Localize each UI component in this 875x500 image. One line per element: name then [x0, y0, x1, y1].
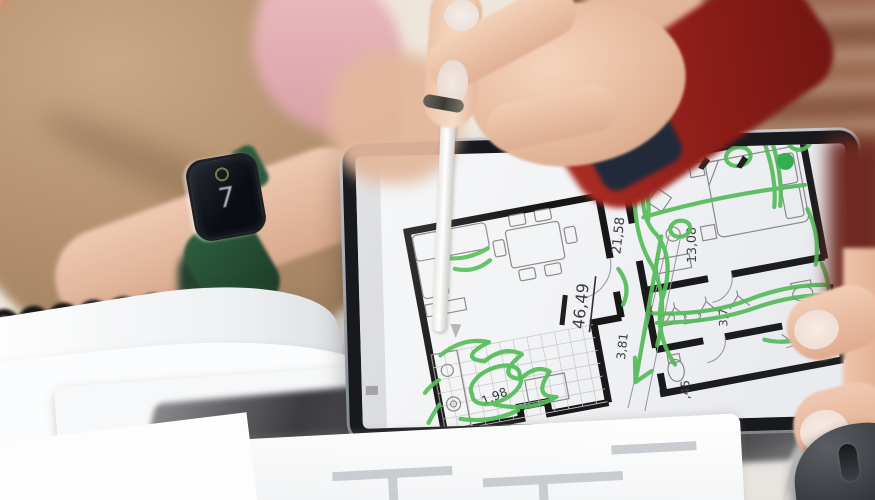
watch-complication-icon [214, 166, 230, 182]
photo-scene: 7 [0, 0, 875, 500]
measurement-bathroom: ,45 [678, 380, 692, 399]
measurement-total-area-group: 46,49 [561, 273, 595, 332]
panel-thumbnail [366, 386, 378, 395]
watch-hour-digit: 7 [193, 177, 260, 220]
measurement-living-room: 21,58 [609, 216, 628, 255]
measurement-total-area: 46,49 [569, 282, 593, 330]
smartwatch-face: 7 [183, 150, 268, 243]
measurement-hallway: 3,81 [614, 332, 631, 360]
